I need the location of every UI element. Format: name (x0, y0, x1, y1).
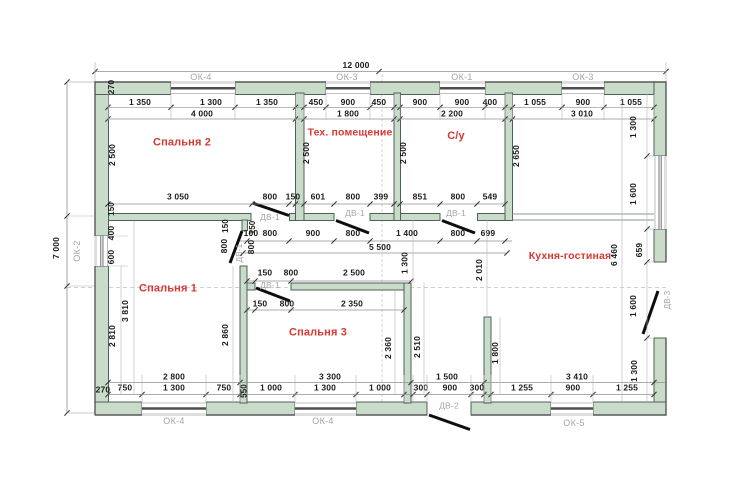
svg-text:549: 549 (483, 192, 498, 202)
svg-text:699: 699 (481, 228, 496, 238)
svg-text:12 000: 12 000 (343, 60, 370, 70)
svg-text:800: 800 (280, 299, 295, 309)
svg-text:750: 750 (118, 383, 133, 393)
svg-text:659: 659 (634, 243, 644, 258)
svg-text:1 055: 1 055 (620, 97, 642, 107)
svg-text:ДВ-1: ДВ-1 (345, 208, 365, 218)
svg-text:800: 800 (451, 192, 466, 202)
svg-text:450: 450 (372, 97, 387, 107)
svg-text:4 000: 4 000 (191, 109, 213, 119)
svg-text:1 600: 1 600 (628, 295, 638, 317)
svg-text:ОК-4: ОК-4 (163, 416, 184, 426)
svg-text:1 600: 1 600 (628, 183, 638, 205)
svg-text:3 810: 3 810 (120, 300, 130, 322)
svg-text:7 000: 7 000 (51, 237, 61, 259)
svg-text:ОК-3: ОК-3 (572, 72, 593, 82)
svg-text:1 300: 1 300 (163, 383, 185, 393)
svg-text:2 500: 2 500 (107, 144, 117, 166)
svg-text:1 000: 1 000 (260, 383, 282, 393)
svg-text:800: 800 (219, 239, 229, 254)
svg-text:300: 300 (470, 383, 485, 393)
svg-text:3 010: 3 010 (571, 109, 593, 119)
svg-text:6 460: 6 460 (609, 244, 619, 266)
svg-text:ОК-5: ОК-5 (563, 418, 584, 428)
svg-text:800: 800 (263, 192, 278, 202)
svg-text:1 255: 1 255 (511, 383, 533, 393)
svg-text:Кухня-гостиная: Кухня-гостиная (529, 250, 612, 262)
svg-text:270: 270 (96, 385, 111, 395)
svg-text:1 350: 1 350 (256, 97, 278, 107)
svg-text:5 500: 5 500 (369, 242, 391, 252)
svg-text:750: 750 (217, 383, 232, 393)
svg-text:150: 150 (253, 299, 268, 309)
svg-text:400: 400 (106, 226, 116, 241)
svg-text:С/у: С/у (447, 130, 465, 142)
svg-text:150: 150 (248, 220, 257, 234)
svg-text:399: 399 (374, 192, 389, 202)
svg-text:150: 150 (258, 268, 273, 278)
svg-text:900: 900 (341, 97, 356, 107)
svg-text:1 000: 1 000 (369, 383, 391, 393)
svg-text:800: 800 (346, 192, 361, 202)
svg-text:900: 900 (576, 97, 591, 107)
svg-text:2 500: 2 500 (398, 142, 408, 164)
svg-text:300: 300 (414, 383, 429, 393)
svg-text:2 500: 2 500 (301, 142, 311, 164)
svg-text:2 010: 2 010 (474, 259, 484, 281)
svg-text:1 300: 1 300 (314, 383, 336, 393)
svg-text:800: 800 (263, 228, 278, 238)
svg-text:2 350: 2 350 (341, 299, 363, 309)
svg-text:550: 550 (240, 384, 249, 398)
svg-text:2 200: 2 200 (441, 109, 463, 119)
svg-text:1 300: 1 300 (200, 97, 222, 107)
svg-text:2 360: 2 360 (383, 337, 393, 359)
svg-text:3 050: 3 050 (167, 192, 189, 202)
svg-text:3 300: 3 300 (319, 372, 341, 382)
svg-text:1 800: 1 800 (490, 342, 500, 364)
svg-text:ОК-2: ОК-2 (72, 240, 82, 261)
svg-text:900: 900 (413, 97, 428, 107)
svg-text:1 400: 1 400 (396, 228, 418, 238)
svg-text:1 800: 1 800 (337, 109, 359, 119)
svg-text:800: 800 (284, 268, 299, 278)
svg-text:1 500: 1 500 (436, 372, 458, 382)
svg-text:1 300: 1 300 (629, 360, 639, 382)
svg-text:851: 851 (413, 192, 428, 202)
svg-text:2 860: 2 860 (220, 324, 230, 346)
svg-text:ДВ-3: ДВ-3 (663, 290, 672, 309)
svg-text:900: 900 (443, 383, 458, 393)
svg-text:900: 900 (566, 383, 581, 393)
svg-text:1 255: 1 255 (616, 383, 638, 393)
svg-text:1 350: 1 350 (129, 97, 151, 107)
svg-text:Спальня 2: Спальня 2 (153, 137, 211, 149)
svg-text:800: 800 (346, 228, 361, 238)
svg-text:ОК-3: ОК-3 (336, 72, 357, 82)
svg-text:2 510: 2 510 (412, 336, 422, 358)
svg-text:2 810: 2 810 (107, 325, 117, 347)
svg-text:3 410: 3 410 (566, 372, 588, 382)
svg-text:ОК-4: ОК-4 (312, 416, 333, 426)
svg-text:Спальня 3: Спальня 3 (289, 327, 347, 339)
svg-text:150: 150 (286, 192, 301, 202)
svg-text:ОК-1: ОК-1 (451, 72, 472, 82)
svg-text:ДВ-1: ДВ-1 (260, 212, 280, 222)
svg-text:1 300: 1 300 (400, 252, 410, 274)
svg-text:2 500: 2 500 (343, 268, 365, 278)
svg-text:ОК-4: ОК-4 (190, 72, 211, 82)
svg-text:900: 900 (306, 228, 321, 238)
svg-text:Тех. помещение: Тех. помещение (308, 127, 393, 139)
svg-text:Спальня 1: Спальня 1 (139, 283, 197, 295)
svg-text:150: 150 (107, 202, 116, 216)
svg-text:800: 800 (451, 228, 466, 238)
svg-text:601: 601 (311, 192, 326, 202)
svg-text:2 800: 2 800 (163, 372, 185, 382)
svg-text:ДВ-2: ДВ-2 (439, 401, 459, 411)
svg-text:450: 450 (309, 97, 324, 107)
svg-text:2 650: 2 650 (511, 145, 521, 167)
svg-text:270: 270 (106, 80, 116, 95)
svg-text:900: 900 (455, 97, 470, 107)
svg-text:600: 600 (106, 250, 116, 265)
svg-text:800: 800 (246, 240, 256, 255)
svg-text:1 055: 1 055 (524, 97, 546, 107)
svg-text:1 300: 1 300 (628, 116, 638, 138)
svg-text:150: 150 (221, 219, 230, 233)
svg-text:ДВ-1: ДВ-1 (260, 280, 280, 290)
svg-text:ДВ-1: ДВ-1 (446, 208, 466, 218)
